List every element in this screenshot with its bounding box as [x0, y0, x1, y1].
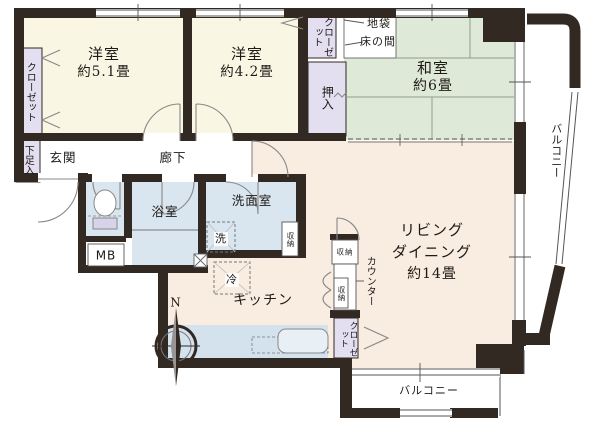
- japanese-room-label: 和室 約6畳: [413, 59, 453, 95]
- bathroom-floor: [132, 182, 198, 265]
- living-line1: リビング: [392, 220, 472, 242]
- bedroom2-name: 洋室: [231, 45, 263, 63]
- balcony-right-outer-wall: [527, 19, 575, 88]
- closet-topleft-label: クローゼット: [24, 50, 35, 134]
- oshiire-label: 押入: [321, 77, 334, 119]
- floor-plan: 洋室 約5.1畳 洋室 約4.2畳 和室 約6畳 リビング ダイニング 約14畳…: [0, 0, 600, 433]
- compass-north-label: N: [170, 296, 182, 311]
- divider-storage-top-label: 収納: [337, 247, 354, 256]
- balcony-right-label: バルコニー: [550, 111, 562, 189]
- washroom-label: 洗面室: [232, 193, 273, 209]
- balcony-bottom-label: バルコニー: [399, 384, 459, 398]
- entrance-label: 玄関: [49, 150, 76, 166]
- bedroom2-label: 洋室 約4.2畳: [220, 45, 273, 81]
- japanese-room-size: 約6畳: [413, 78, 453, 96]
- living-size: 約14畳: [392, 264, 472, 284]
- closet-divider-label: クローゼット: [338, 321, 357, 357]
- entrance-door: [38, 179, 78, 222]
- closet-topcenter-label: クローゼット: [311, 17, 332, 57]
- washer-label: 洗: [214, 232, 228, 246]
- bedroom1-name: 洋室: [88, 45, 120, 63]
- living-line2: ダイニング: [392, 242, 472, 264]
- fridge-label: 冷: [225, 273, 239, 287]
- japanese-room-name: 和室: [417, 59, 449, 77]
- washroom-storage-label: 収納: [286, 226, 294, 252]
- bedroom2-size: 約4.2畳: [220, 64, 273, 81]
- bedroom1-label: 洋室 約5.1畳: [77, 45, 130, 81]
- living-dining-label: リビング ダイニング 約14畳: [392, 220, 472, 284]
- meter-box-label: MB: [96, 249, 117, 264]
- shoe-box-label: 下足入: [22, 141, 33, 179]
- balcony-right-diagonal-wall: [544, 266, 560, 336]
- divider-storage-vertical-label: 収納: [337, 280, 345, 306]
- living-entry-floor: [252, 141, 306, 174]
- window-balcony-railing: [400, 409, 452, 417]
- counter-label: カウンター: [364, 250, 375, 312]
- bedroom1-size: 約5.1畳: [77, 64, 130, 81]
- bathroom-label: 浴室: [151, 204, 178, 220]
- jibukuro-label: 地袋: [367, 17, 391, 31]
- corridor-label: 廊下: [159, 150, 186, 166]
- tokonoma-label: 床の間: [360, 35, 396, 49]
- kitchen-label: キッチン: [233, 292, 293, 310]
- pipe-space: [194, 254, 207, 267]
